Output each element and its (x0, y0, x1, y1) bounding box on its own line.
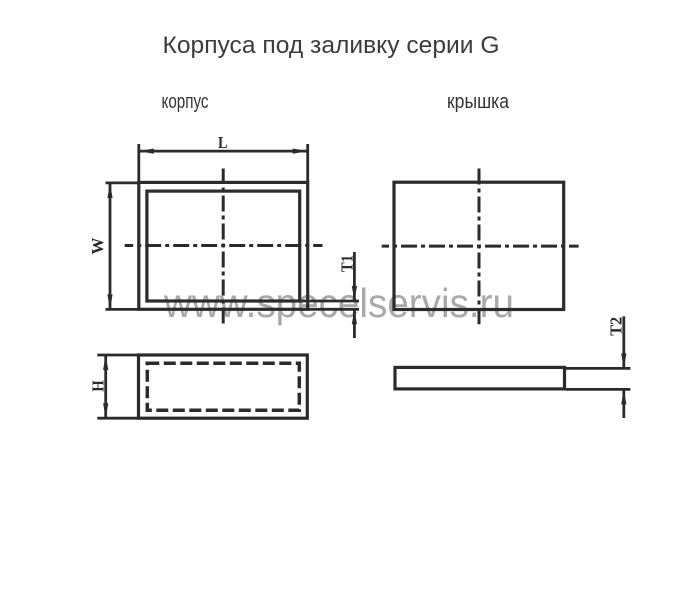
svg-text:W: W (88, 238, 107, 255)
svg-text:www.specelservis.ru: www.specelservis.ru (163, 280, 514, 326)
svg-text:корпус: корпус (162, 91, 209, 113)
svg-text:H: H (89, 380, 108, 392)
svg-text:T1: T1 (338, 255, 357, 272)
svg-text:L: L (218, 133, 228, 152)
svg-text:Корпуса под заливку серии G: Корпуса под заливку серии G (163, 32, 500, 59)
svg-text:крышка: крышка (447, 91, 510, 113)
svg-text:T2: T2 (607, 317, 626, 336)
